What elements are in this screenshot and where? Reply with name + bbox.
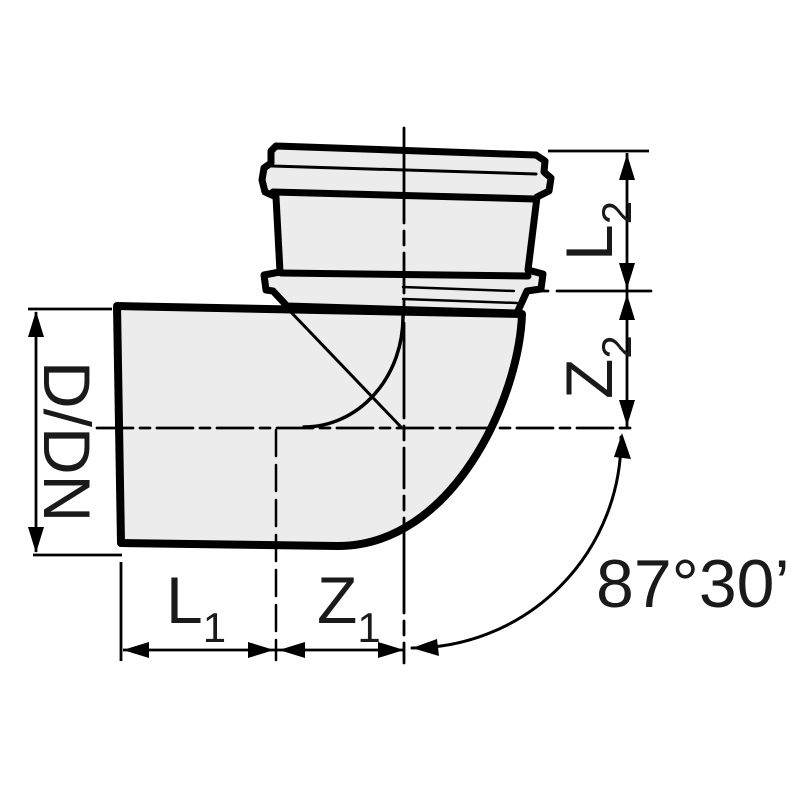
z1-label-main: Z bbox=[317, 563, 357, 637]
l2-arrowhead-bottom bbox=[619, 263, 635, 289]
z1-arrowhead-right bbox=[378, 642, 404, 658]
z1-label-sub: 1 bbox=[357, 604, 380, 651]
z2-label-sub: 2 bbox=[593, 335, 640, 358]
l1-label-sub: 1 bbox=[203, 604, 226, 651]
angle-label: 87°30’ bbox=[596, 546, 790, 622]
l1-arrowhead-right bbox=[248, 642, 274, 658]
z2-arrowhead-bottom bbox=[619, 400, 635, 426]
drawing-canvas: D/DN L1 Z1 L2 Z2 87°30’ bbox=[0, 0, 800, 800]
z1-arrowhead-left bbox=[279, 642, 305, 658]
l1-label-main: L bbox=[166, 563, 203, 637]
z2-label-main: Z bbox=[552, 359, 626, 399]
z1-label: Z1 bbox=[317, 563, 381, 651]
l2-arrowhead-top bbox=[619, 154, 635, 180]
l1-arrowhead-left bbox=[123, 642, 149, 658]
angle-arc-arrowhead-top bbox=[614, 433, 631, 459]
pipe-bend-diagram: D/DN L1 Z1 L2 Z2 87°30’ bbox=[0, 0, 800, 800]
l2-label-sub: 2 bbox=[593, 201, 640, 224]
z2-arrowhead-top bbox=[619, 294, 635, 320]
ddn-label: D/DN bbox=[30, 361, 104, 522]
l2-label-main: L bbox=[552, 224, 626, 261]
l1-label: L1 bbox=[166, 563, 226, 651]
ddn-arrowhead-top bbox=[28, 311, 44, 337]
ddn-arrowhead-bottom bbox=[28, 527, 44, 553]
angle-arc-arrowhead-bottom bbox=[412, 639, 439, 656]
